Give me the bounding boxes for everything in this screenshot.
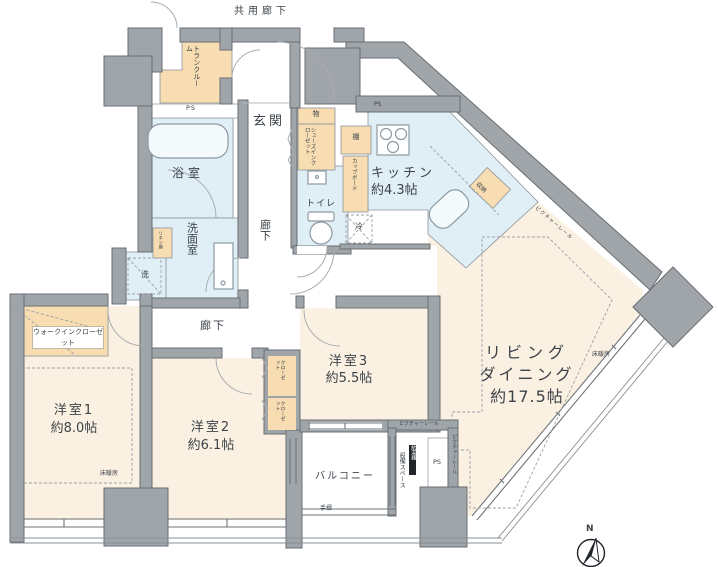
label-corridor-vertical: 廊下 (259, 219, 271, 257)
label-ps-top: PS (186, 105, 196, 113)
label-picture-rail-horizontal: ピクチャーレール (399, 422, 439, 428)
label-floor-heating-bedroom1: 床暖房 (100, 470, 118, 477)
label-fridge-space: 冷 (355, 222, 363, 231)
label-water-heater: 給湯器 (409, 445, 416, 475)
label-washroom: 洗面室 (186, 222, 198, 276)
label-washer-space: 洗 (141, 270, 149, 279)
label-closet1: クローゼット (274, 360, 285, 380)
trunk-door-arc (232, 50, 260, 78)
label-north: N (586, 524, 594, 535)
bathtub-icon (148, 124, 228, 158)
label-living-line2: ダイニング (479, 366, 574, 385)
label-ps-right: PS (433, 459, 441, 467)
label-trunk-room: トランクルーム (185, 45, 200, 89)
label-toilet: トイレ (306, 199, 336, 210)
label-bedroom3-size: 約5.5帖 (326, 371, 373, 386)
label-closet2: クローゼット (274, 401, 285, 421)
floor-plan: 共用廊下 トランクルーム PS 浴室 洗面室 リネン庫 洗 玄関 廊下 物 シュ… (0, 0, 718, 567)
stove-icon (377, 125, 409, 155)
vanity-icon (214, 243, 233, 289)
label-goods-storage: 物 (313, 110, 320, 118)
label-bedroom1-name: 洋室1 (54, 403, 94, 418)
label-bedroom2-name: 洋室2 (191, 420, 231, 435)
label-shelf: 棚 (353, 133, 360, 141)
label-balcony: バルコニー (315, 471, 375, 483)
label-shoes-in-closet: シューズインクローゼット (303, 127, 315, 167)
label-bedroom2-size: 約6.1帖 (188, 438, 235, 453)
label-picture-rail-vertical: ピクチャーレール (451, 434, 456, 492)
compass-icon (578, 538, 605, 567)
label-linen: リネン庫 (157, 231, 162, 257)
label-cupboard: カップボード (350, 158, 356, 210)
label-bedroom3-name: 洋室3 (329, 354, 369, 369)
living-door-arc (290, 250, 334, 294)
label-bedroom1-size: 約8.0帖 (51, 421, 98, 436)
toilet-basin-icon (308, 171, 326, 184)
label-living-size: 約17.5帖 (490, 388, 564, 407)
label-walk-in-closet: ウォークインクローゼット (32, 326, 104, 349)
label-kitchen-name: キッチン (371, 166, 435, 181)
label-entrance: 玄関 (253, 114, 285, 129)
label-handrail: 手摺 (320, 505, 332, 512)
label-equipment-space: 設備スペース (398, 452, 404, 514)
label-bathroom: 浴室 (172, 166, 204, 180)
label-corridor-horizontal: 廊下 (200, 320, 226, 333)
toilet-icon (308, 212, 334, 244)
balcony-handrail (302, 509, 396, 515)
trunk-corridor-door-arc (151, 2, 177, 28)
label-living-line1: リビング (485, 344, 569, 363)
label-common-corridor: 共用廊下 (234, 6, 290, 18)
label-kitchen-size: 約4.3帖 (371, 183, 418, 198)
label-floor-heating-living: 床暖房 (592, 351, 610, 358)
label-ps-kitchen: PS (374, 101, 381, 108)
